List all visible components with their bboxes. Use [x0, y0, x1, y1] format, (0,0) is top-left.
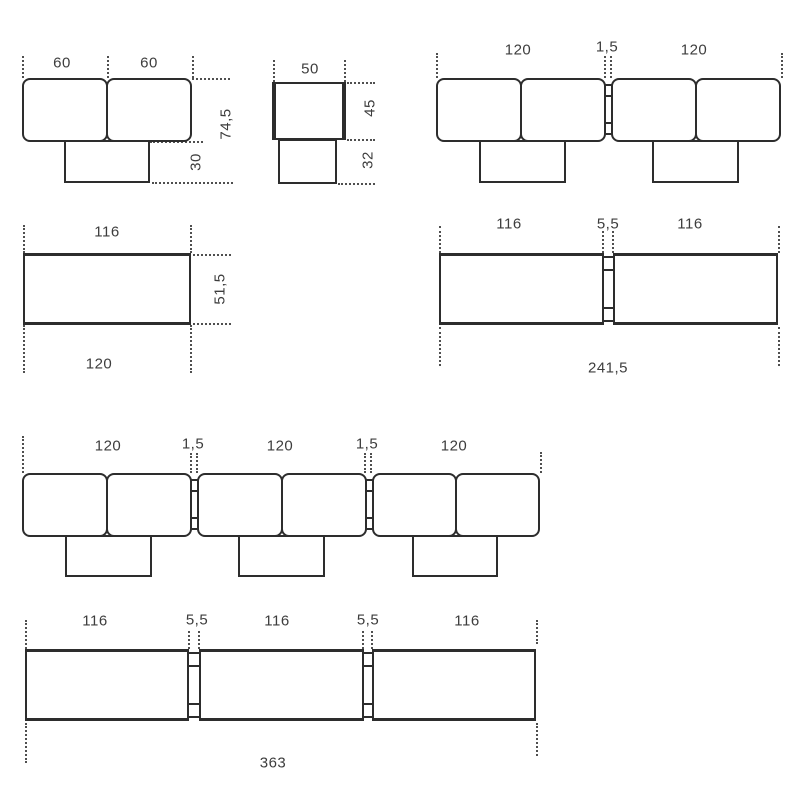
extension-line: [22, 56, 24, 78]
extension-line: [193, 254, 231, 256]
extension-line: [273, 60, 275, 82]
seat-cushion: [372, 473, 457, 537]
dim-gap: 5,5: [597, 217, 619, 232]
base-outline: [479, 140, 566, 183]
seat-cushion: [436, 78, 522, 142]
dim-depth: 45: [363, 99, 378, 117]
dim-total-width: 241,5: [588, 361, 628, 376]
dim-width-right: 116: [677, 217, 702, 232]
dim-width-2: 116: [264, 614, 289, 629]
base-outline: [652, 140, 739, 183]
dim-width-1: 116: [82, 614, 107, 629]
module-clip: [604, 84, 613, 97]
base-outline: [64, 140, 150, 183]
dim-width-left: 116: [496, 217, 521, 232]
extension-line: [778, 226, 780, 253]
extension-line: [781, 53, 783, 78]
dim-gap-2: 5,5: [357, 613, 379, 628]
module-clip: [365, 517, 374, 530]
extension-line: [152, 182, 233, 184]
module-clip: [190, 479, 199, 492]
extension-line: [23, 225, 25, 253]
extension-line: [436, 53, 438, 78]
extension-line: [190, 225, 192, 253]
extension-line: [192, 56, 194, 78]
dim-base-depth: 32: [361, 151, 376, 169]
extension-line: [612, 231, 614, 253]
extension-line: [22, 436, 24, 473]
module-front-outline: [613, 253, 778, 325]
seat-cushion: [197, 473, 283, 537]
seat-cushion: [281, 473, 367, 537]
extension-line: [362, 631, 364, 649]
seat-cushion: [520, 78, 606, 142]
extension-line: [198, 631, 200, 649]
dim-depth-total: 74,5: [219, 108, 234, 139]
base-outline: [238, 535, 325, 577]
dim-width-1: 120: [95, 439, 122, 454]
extension-line: [25, 620, 27, 649]
extension-line: [344, 60, 346, 82]
connector-box: [362, 652, 374, 667]
connector-box: [187, 652, 201, 667]
extension-line: [192, 78, 230, 80]
connector-box: [187, 703, 201, 718]
extension-line: [371, 631, 373, 649]
seat-cushion: [611, 78, 697, 142]
connector-box: [602, 307, 615, 322]
dim-width: 50: [301, 62, 319, 77]
module-clip: [365, 479, 374, 492]
module-front-outline: [23, 253, 191, 325]
dim-gap: 1,5: [596, 40, 618, 55]
dim-width-left: 120: [505, 43, 532, 58]
extension-line: [190, 453, 192, 473]
extension-line: [364, 453, 366, 473]
extension-line: [338, 183, 375, 185]
seat-cushion: [455, 473, 540, 537]
extension-line: [536, 620, 538, 644]
extension-line: [193, 323, 231, 325]
extension-line: [540, 452, 542, 473]
extension-line: [190, 325, 192, 373]
extension-line: [536, 723, 538, 756]
dim-width-right: 120: [681, 43, 708, 58]
dim-gap-1: 5,5: [186, 613, 208, 628]
extension-line: [439, 226, 441, 253]
pouf-outline: [272, 82, 346, 140]
dim-width-2: 120: [267, 439, 294, 454]
connector-box: [362, 703, 374, 718]
extension-line: [610, 56, 612, 78]
connector-box: [602, 256, 615, 271]
dimension-drawing-canvas: 60 60 74,5 30 50 45 32 120 1,5 120: [0, 0, 800, 800]
module-front-outline: [372, 649, 536, 721]
dim-bottom-width: 120: [86, 357, 113, 372]
seat-cushion: [106, 78, 192, 142]
dim-top-width: 116: [94, 225, 119, 240]
dim-width-right: 60: [140, 56, 158, 71]
module-clip: [190, 517, 199, 530]
extension-line: [347, 139, 375, 141]
extension-line: [778, 327, 780, 366]
extension-line: [107, 56, 109, 78]
dim-width-3: 120: [441, 439, 468, 454]
dim-base-depth: 30: [189, 153, 204, 171]
dim-total-width: 363: [260, 756, 287, 771]
seat-cushion: [22, 78, 108, 142]
dim-height: 51,5: [213, 273, 228, 304]
module-clip: [604, 122, 613, 135]
seat-cushion: [106, 473, 192, 537]
extension-line: [439, 327, 441, 366]
module-front-outline: [199, 649, 364, 721]
module-front-outline: [439, 253, 604, 325]
extension-line: [604, 56, 606, 78]
extension-line: [188, 631, 190, 649]
dim-width-left: 60: [53, 56, 71, 71]
seat-cushion: [695, 78, 781, 142]
dim-gap-2: 1,5: [356, 437, 378, 452]
dim-width-3: 116: [454, 614, 479, 629]
extension-line: [196, 453, 198, 473]
base-outline: [65, 535, 152, 577]
extension-line: [347, 82, 375, 84]
dim-gap-1: 1,5: [182, 437, 204, 452]
extension-line: [602, 231, 604, 253]
extension-line: [370, 453, 372, 473]
extension-line: [23, 325, 25, 373]
pouf-base-outline: [278, 139, 337, 184]
seat-cushion: [22, 473, 108, 537]
extension-line: [25, 723, 27, 763]
module-front-outline: [25, 649, 189, 721]
base-outline: [412, 535, 498, 577]
